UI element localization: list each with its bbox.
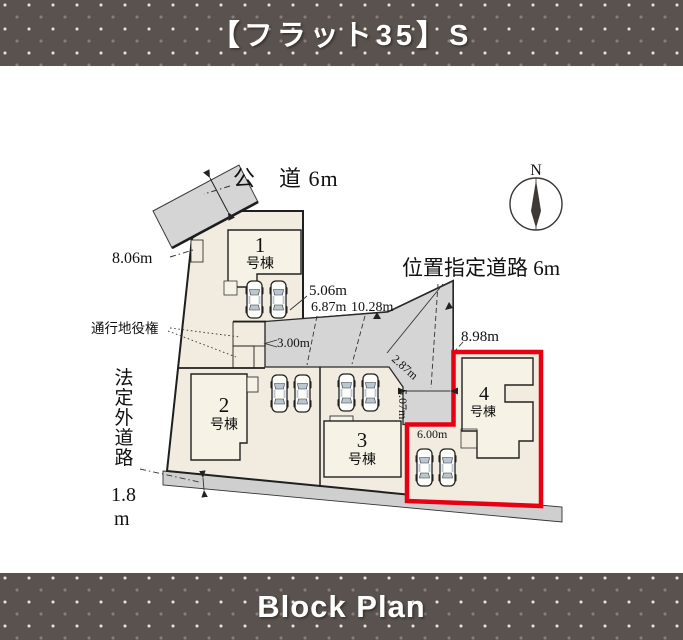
car-icon xyxy=(270,281,288,318)
dim-3-00m: 3.00m xyxy=(277,335,310,350)
dim-8-98m: 8.98m xyxy=(461,329,499,345)
car-icon xyxy=(338,374,356,411)
label-statutory-road: 法定外道路 xyxy=(114,367,133,469)
building-3-number: 3 xyxy=(357,428,368,452)
building-4-number: 4 xyxy=(479,383,489,405)
flyer-page: 1 号棟 2 号棟 3 号棟 4 号棟 xyxy=(0,0,683,640)
top-banner-title: 【フラット35】S xyxy=(211,12,473,54)
building-2-annex xyxy=(247,377,258,392)
building-2-number: 2 xyxy=(219,393,230,417)
north-compass: N xyxy=(510,162,562,230)
dim-5-07m: 5.07m xyxy=(396,389,410,420)
label-easement: 通行地役権 xyxy=(91,320,159,336)
building-3-label: 号棟 xyxy=(348,452,376,468)
dim-6-87m: 6.87m xyxy=(311,300,347,315)
boundary-notch xyxy=(191,240,203,262)
building-3: 3 号棟 xyxy=(324,416,401,477)
label-public-road: 公 道 6m xyxy=(233,166,339,191)
building-1-number: 1 xyxy=(255,233,266,257)
building-1-label: 号棟 xyxy=(246,256,274,272)
car-icon xyxy=(362,374,380,411)
dim-1-8-unit: m xyxy=(114,508,130,530)
building-2-label: 号棟 xyxy=(210,417,238,433)
building-4-label: 号棟 xyxy=(470,404,496,419)
dim-1-8: 1.8 xyxy=(111,484,136,506)
bottom-banner-title: Block Plan xyxy=(257,589,426,625)
building-1-porch xyxy=(224,281,237,295)
car-icon xyxy=(271,375,289,412)
dim-6-00m: 6.00m xyxy=(417,427,448,441)
car-icon xyxy=(439,449,457,486)
label-designated-road: 位置指定道路 6m xyxy=(402,256,560,280)
dim-8-06m: 8.06m xyxy=(112,250,153,267)
top-banner: 【フラット35】S xyxy=(0,0,683,66)
dim-5-06m: 5.06m xyxy=(309,283,347,299)
car-icon xyxy=(294,375,312,412)
site-plan: 1 号棟 2 号棟 3 号棟 4 号棟 xyxy=(0,0,683,640)
compass-n-label: N xyxy=(530,162,542,179)
dim-10-28m: 10.28m xyxy=(351,300,394,315)
car-icon xyxy=(416,449,434,486)
bottom-banner: Block Plan xyxy=(0,573,683,640)
car-icon xyxy=(246,281,264,318)
